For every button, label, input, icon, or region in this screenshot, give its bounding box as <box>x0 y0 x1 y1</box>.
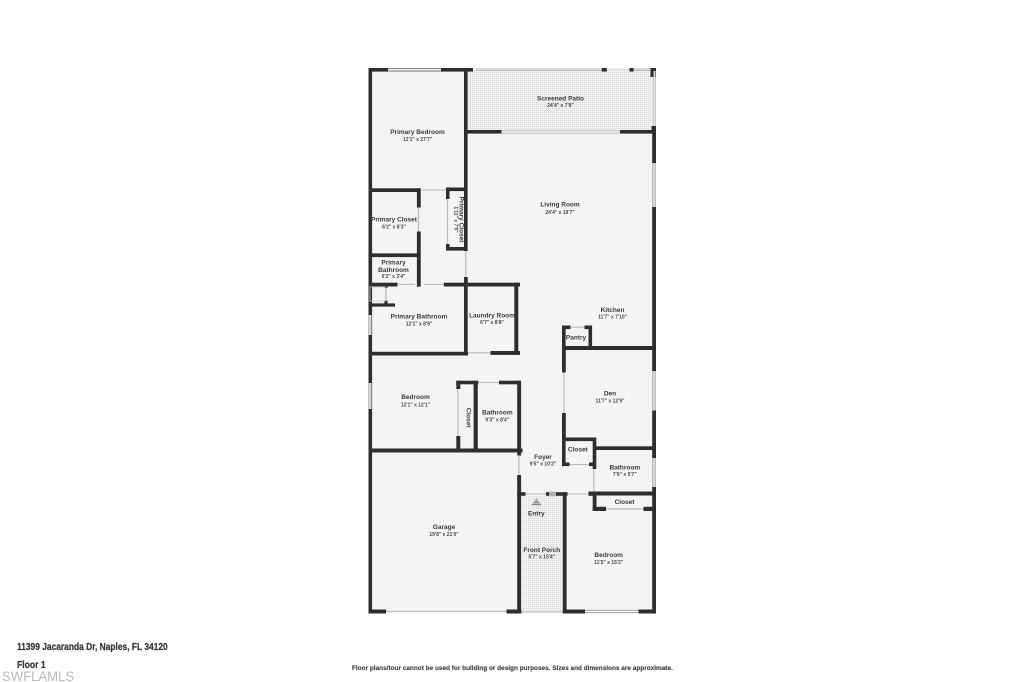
svg-text:Closet: Closet <box>465 408 472 429</box>
svg-text:Screened Patio: Screened Patio <box>537 96 584 103</box>
svg-text:Primary Closet: Primary Closet <box>371 217 418 224</box>
svg-text:24'4" x 7'8": 24'4" x 7'8" <box>547 103 574 109</box>
svg-text:Primary Bedroom: Primary Bedroom <box>390 129 445 136</box>
svg-text:9'5" x 10'2": 9'5" x 10'2" <box>530 461 557 467</box>
svg-text:9'3" x 8'4": 9'3" x 8'4" <box>485 417 509 423</box>
svg-text:6'2" x 3'4": 6'2" x 3'4" <box>382 274 406 280</box>
svg-text:1'11" x 7'9": 1'11" x 7'9" <box>452 206 458 233</box>
svg-text:Laundry Room: Laundry Room <box>469 312 515 319</box>
svg-text:Bathroom: Bathroom <box>482 409 513 416</box>
svg-text:6'7" x 8'8": 6'7" x 8'8" <box>480 320 504 326</box>
svg-text:12'1" x 27'7": 12'1" x 27'7" <box>403 137 433 143</box>
svg-text:11'7" x 12'9": 11'7" x 12'9" <box>595 399 625 405</box>
svg-text:Primary Bathroom: Primary Bathroom <box>391 313 448 320</box>
svg-text:Bedroom: Bedroom <box>401 394 430 401</box>
svg-text:5'7" x 15'4": 5'7" x 15'4" <box>529 555 556 561</box>
svg-text:Front Porch: Front Porch <box>523 547 560 554</box>
svg-text:Bathroom: Bathroom <box>609 464 640 471</box>
svg-text:11'5" x 15'2": 11'5" x 15'2" <box>594 560 624 566</box>
svg-text:Primary: Primary <box>381 259 406 266</box>
svg-text:Kitchen: Kitchen <box>601 307 625 314</box>
svg-text:Closet: Closet <box>615 499 636 506</box>
svg-text:Entry: Entry <box>528 510 545 517</box>
svg-text:Den: Den <box>604 390 616 397</box>
svg-text:12'1" x 12'1": 12'1" x 12'1" <box>401 402 431 408</box>
svg-text:Pantry: Pantry <box>566 335 587 342</box>
svg-text:11'7" x 7'10": 11'7" x 7'10" <box>598 315 628 321</box>
svg-text:7'6" x 5'7": 7'6" x 5'7" <box>613 472 637 478</box>
svg-text:24'4" x 19'7": 24'4" x 19'7" <box>545 210 575 216</box>
svg-text:Bedroom: Bedroom <box>594 552 623 559</box>
svg-text:Living Room: Living Room <box>540 201 580 208</box>
svg-text:19'8" x 21'0": 19'8" x 21'0" <box>429 532 459 538</box>
svg-text:Garage: Garage <box>433 524 456 531</box>
svg-text:Bathroom: Bathroom <box>378 267 409 274</box>
svg-text:Closet: Closet <box>568 447 589 454</box>
svg-text:Foyer: Foyer <box>534 454 552 461</box>
svg-text:6'2" x 8'3": 6'2" x 8'3" <box>382 225 406 231</box>
svg-text:12'1" x 8'9": 12'1" x 8'9" <box>406 321 433 327</box>
